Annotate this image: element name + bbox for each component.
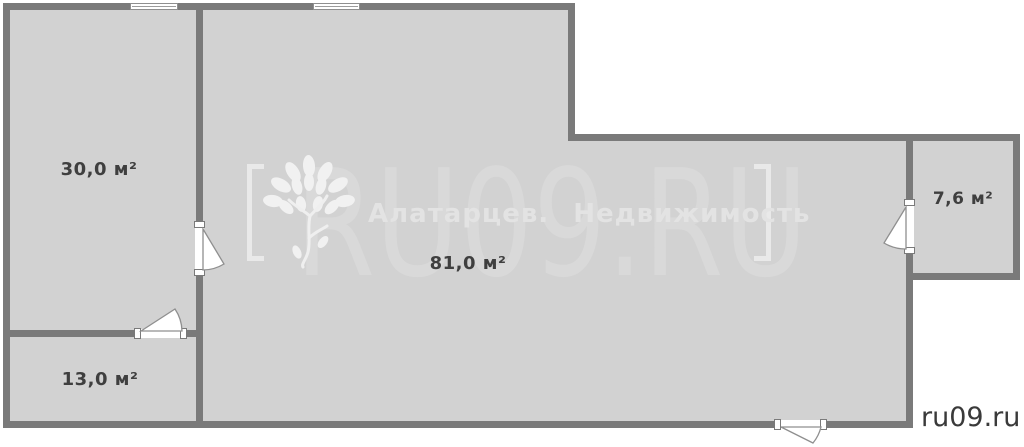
tree-logo-icon <box>255 152 367 270</box>
room-area-label-7-6: 7,6 м² <box>903 189 1023 209</box>
room-area-label-13: 13,0 м² <box>40 369 160 390</box>
door-opening-entrance <box>779 420 822 429</box>
wall-room-right-bottom <box>906 273 1020 280</box>
door-jamb <box>194 221 205 228</box>
wall-left-exterior <box>3 3 10 428</box>
watermark-agency-text: Алатарцев. Недвижимость <box>368 199 810 229</box>
wall-top <box>3 3 575 10</box>
window-icon <box>130 3 178 10</box>
window-pane-line <box>132 6 176 7</box>
door-jamb <box>194 269 205 276</box>
wall-interior-left-vertical <box>196 10 203 421</box>
room-area-label-81: 81,0 м² <box>408 253 528 274</box>
door-jamb <box>774 419 781 430</box>
window-pane-line <box>315 6 358 7</box>
wall-mid-vertical <box>906 134 913 428</box>
door-opening-left-rooms <box>140 329 182 338</box>
door-jamb <box>180 328 187 339</box>
door-opening-main-to-left <box>195 228 204 270</box>
door-jamb <box>134 328 141 339</box>
floor-left-column <box>10 10 196 421</box>
door-jamb <box>904 247 915 254</box>
door-jamb <box>820 419 827 430</box>
door-opening-main-to-right <box>905 206 914 248</box>
floor-plan: RU09.RU Алатарцев. Недви <box>0 0 1024 447</box>
window-icon <box>313 3 360 10</box>
door-arc-entrance <box>781 427 821 443</box>
room-area-label-30: 30,0 м² <box>39 159 159 180</box>
wall-step-vertical <box>568 3 575 141</box>
site-watermark-label: ru09.ru <box>921 402 1020 433</box>
